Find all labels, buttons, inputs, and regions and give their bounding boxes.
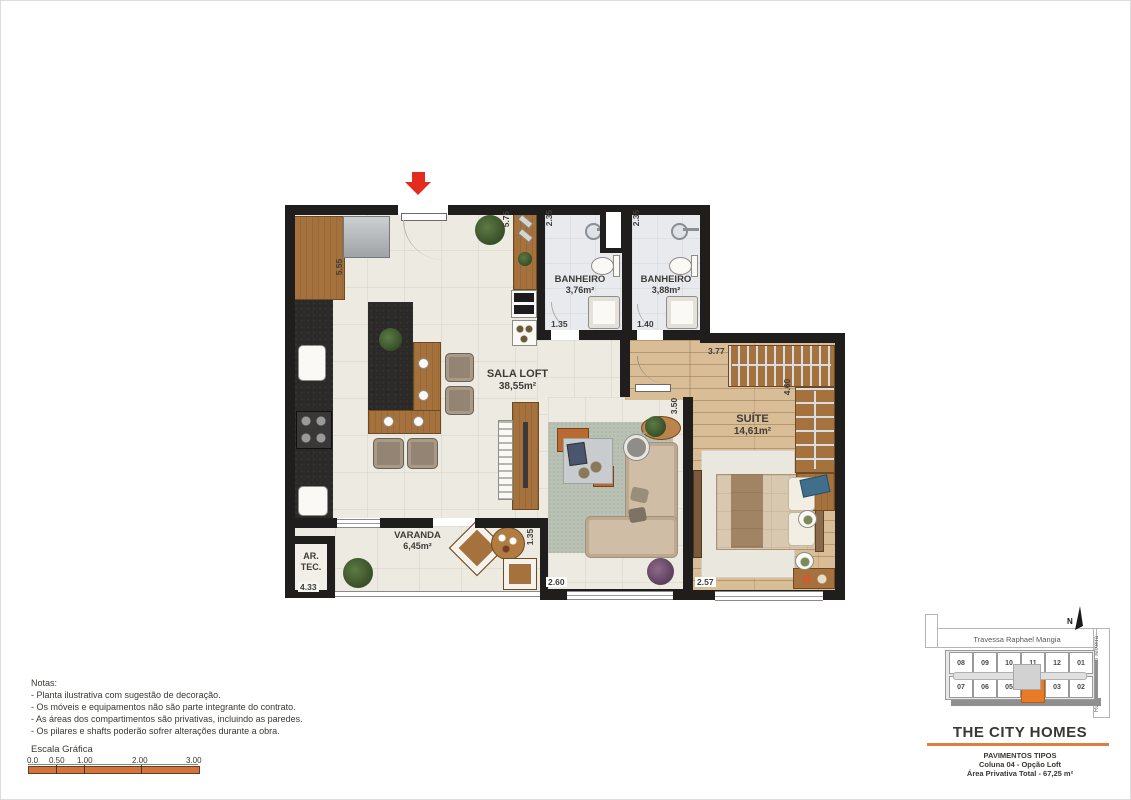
banheiro2-area: 3,88m² — [630, 285, 702, 296]
unit-cell: 12 — [1045, 652, 1069, 674]
banheiro1-area: 3,76m² — [537, 285, 623, 296]
toilet-bowl — [591, 257, 614, 275]
dim-varanda-width: 4.33 — [298, 582, 319, 592]
dim-sala-suite: 3.50 — [669, 391, 679, 421]
banheiro2-label: BANHEIRO 3,88m² — [630, 274, 702, 296]
unit-number: 06 — [981, 684, 989, 691]
unit-number: 12 — [1053, 660, 1061, 667]
varanda-glass — [337, 519, 380, 528]
sala-area: 38,55m² — [465, 381, 570, 393]
kitchen-sink-2 — [298, 486, 328, 516]
coffee-table-book — [567, 442, 588, 466]
dim-varanda-right: 1.35 — [525, 522, 535, 552]
varanda-railing — [335, 591, 540, 597]
banheiro1-label: BANHEIRO 3,76m² — [537, 274, 623, 296]
note-line: - Os pilares e shafts poderão sofrer alt… — [31, 726, 303, 738]
scale-bar-tick — [84, 764, 85, 774]
scale-title: Escala Gráfica — [31, 744, 93, 755]
plate — [418, 358, 429, 369]
varanda-chair — [503, 558, 537, 590]
notes-title: Notas: — [31, 678, 303, 690]
shower-icon — [671, 223, 688, 240]
scale-bar — [28, 766, 200, 774]
varanda-plant-icon — [343, 558, 373, 588]
tray-plant-icon — [645, 416, 666, 437]
dining-table-ext — [368, 410, 441, 434]
tv-icon — [523, 422, 528, 488]
suite-window — [715, 591, 823, 601]
dim-entry-depth: 5.75 — [501, 204, 511, 234]
bar-cart — [512, 320, 537, 346]
bed-throw — [731, 474, 763, 548]
unit-number: 10 — [1005, 660, 1013, 667]
dim-bath1-width: 1.35 — [551, 319, 568, 329]
unit-number: 09 — [981, 660, 989, 667]
table-lamp-icon — [795, 552, 814, 570]
closet-rail — [814, 391, 816, 469]
artec-line2: TEC. — [293, 562, 329, 573]
unit-cell: 09 — [973, 652, 997, 674]
entry-arrow-head-icon — [405, 182, 431, 195]
artec-label: AR. TEC. — [293, 551, 329, 572]
suite-label: SUÍTE 14,61m² — [705, 413, 800, 438]
titleblock-line2: Coluna 04 - Opção Loft — [925, 760, 1115, 769]
unit-number: 08 — [957, 660, 965, 667]
scale-bar-topline — [28, 764, 198, 765]
unit-cell: 01 — [1069, 652, 1093, 674]
shaft — [606, 212, 621, 248]
north-arrow-icon: N — [1065, 606, 1087, 632]
fridge — [343, 216, 390, 258]
closet-rail — [732, 364, 831, 366]
suite-tv-icon — [693, 470, 702, 558]
island-plant-icon — [379, 328, 402, 351]
wall-sala-suite — [683, 397, 693, 600]
note-line: - As áreas dos compartimentos são privat… — [31, 714, 303, 726]
plate — [413, 416, 424, 427]
entry-arrow-icon — [412, 172, 425, 182]
wall-suite-right — [835, 333, 845, 600]
scale-bar-tick — [56, 764, 57, 774]
building-core — [1013, 664, 1041, 690]
suite-area: 14,61m² — [705, 426, 800, 438]
table-lamp-icon — [798, 510, 817, 528]
wall-varanda-b — [380, 518, 433, 528]
scale-bar-tick — [141, 764, 142, 774]
plate — [383, 416, 394, 427]
island — [368, 302, 413, 410]
coffee-machine — [514, 305, 534, 314]
banheiro2-name: BANHEIRO — [630, 274, 702, 285]
shower-arm — [683, 228, 699, 231]
kitchen-sink — [298, 345, 326, 381]
dim-bath2-depth: 2.35 — [631, 203, 641, 233]
wall-suite-top — [700, 333, 845, 343]
titleblock-line1: PAVIMENTOS TIPOS — [925, 751, 1115, 760]
dim-bath2-width: 1.40 — [637, 319, 654, 329]
shelf-unit — [498, 420, 513, 500]
unit-cell: 08 — [949, 652, 973, 674]
suite-bench — [793, 568, 835, 589]
wall-top-mid — [448, 205, 545, 215]
varanda-area: 6,45m² — [375, 541, 460, 552]
unit-number: 03 — [1053, 684, 1061, 691]
titleblock-line3: Área Privativa Total - 67,25 m² — [925, 769, 1115, 778]
varanda-name: VARANDA — [375, 530, 460, 541]
suite-door-leaf — [635, 384, 671, 392]
floor-lamp-icon — [624, 435, 649, 460]
cooktop — [296, 411, 332, 449]
dim-suite-depth: 4.60 — [782, 372, 792, 402]
floor-plan: SALA LOFT 38,55m² BANHEIRO 3,76m² BANHEI… — [285, 170, 847, 610]
artec-line1: AR. — [293, 551, 329, 562]
banheiro1-name: BANHEIRO — [537, 274, 623, 285]
wall-varanda-a — [293, 518, 337, 528]
dining-chair — [373, 438, 404, 469]
banheiro2-door-opening — [637, 330, 663, 340]
dining-chair — [407, 438, 438, 469]
plate — [418, 390, 429, 401]
note-line: - Planta ilustrativa com sugestão de dec… — [31, 690, 303, 702]
wall-bath-right — [700, 205, 710, 340]
street-top-label: Travessa Raphael Mangia — [973, 635, 1060, 644]
notes-block: Notas: - Planta ilustrativa com sugestão… — [31, 678, 303, 738]
wall-corridor-stub — [620, 340, 630, 397]
unit-number: 01 — [1077, 660, 1085, 667]
unit-number: 05 — [1005, 684, 1013, 691]
floorplan-sheet: SALA LOFT 38,55m² BANHEIRO 3,76m² BANHEI… — [0, 0, 1131, 800]
wall-top-left — [285, 205, 400, 215]
note-line: - Os móveis e equipamentos não são parte… — [31, 702, 303, 714]
banheiro1-door-opening — [551, 330, 579, 340]
unit-number: 02 — [1077, 684, 1085, 691]
sala-label: SALA LOFT 38,55m² — [465, 368, 570, 393]
living-window — [567, 591, 673, 600]
toilet-bowl — [669, 257, 692, 275]
unit-number: 07 — [957, 684, 965, 691]
dim-bath1-depth: 2.35 — [544, 203, 554, 233]
sideboard-plant-icon — [518, 252, 532, 266]
varanda-label: VARANDA 6,45m² — [375, 530, 460, 552]
dim-living-width: 2.60 — [546, 577, 567, 587]
dim-kitchen-depth: 5.55 — [334, 252, 344, 282]
sofa-pillow — [628, 507, 647, 524]
keyplan: N Travessa Raphael Mangia Rua Pref. Seba… — [925, 602, 1115, 787]
brand-title: THE CITY HOMES — [925, 724, 1115, 741]
sala-name: SALA LOFT — [465, 368, 570, 381]
coffee-machine — [514, 293, 534, 302]
varanda-table — [491, 527, 525, 560]
living-plant-icon — [647, 558, 674, 585]
bath-vanity — [666, 296, 698, 329]
dim-closet-width: 3.77 — [708, 346, 725, 356]
suite-name: SUÍTE — [705, 413, 800, 426]
dim-suite-width: 2.57 — [695, 577, 716, 587]
bath-vanity — [588, 296, 620, 329]
brand-rule — [927, 743, 1109, 746]
north-label: N — [1067, 617, 1073, 626]
